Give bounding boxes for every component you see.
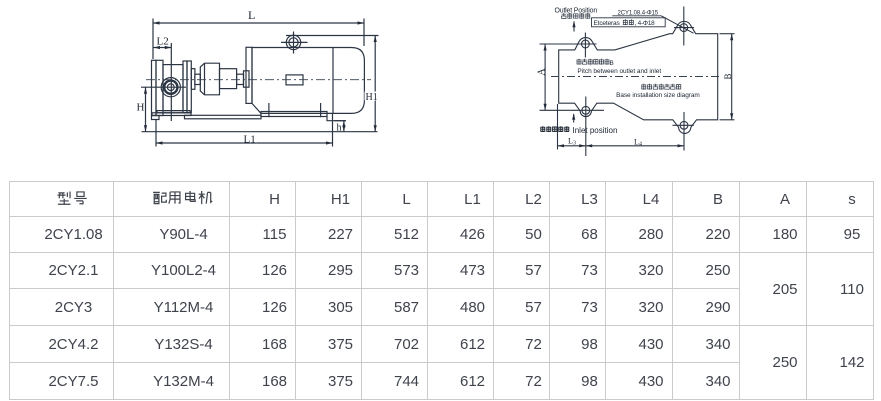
svg-text:B: B <box>723 73 733 79</box>
svg-text:Base installation size diagram: Base installation size diagram <box>616 92 700 99</box>
svg-text:Outlet Position: Outlet Position <box>555 8 598 15</box>
svg-text:L1: L1 <box>244 134 256 146</box>
svg-text:L: L <box>248 8 255 22</box>
svg-text:2CY1.08.4-Φ15: 2CY1.08.4-Φ15 <box>618 10 659 16</box>
svg-text:H: H <box>137 102 145 114</box>
svg-text:Inlet position: Inlet position <box>573 126 618 135</box>
svg-text:B: B <box>610 60 614 67</box>
svg-text:4: 4 <box>639 142 642 148</box>
svg-text:A: A <box>537 68 548 76</box>
svg-text:3: 3 <box>573 141 576 147</box>
svg-text:, 4-Φ18: , 4-Φ18 <box>635 20 656 27</box>
svg-text:Pitch between outlet and inlet: Pitch between outlet and inlet <box>577 68 661 75</box>
svg-text:h: h <box>337 123 342 134</box>
svg-text:Etceteras: Etceteras <box>594 20 621 27</box>
svg-text:L2: L2 <box>157 36 169 48</box>
svg-text:H1: H1 <box>366 92 378 103</box>
